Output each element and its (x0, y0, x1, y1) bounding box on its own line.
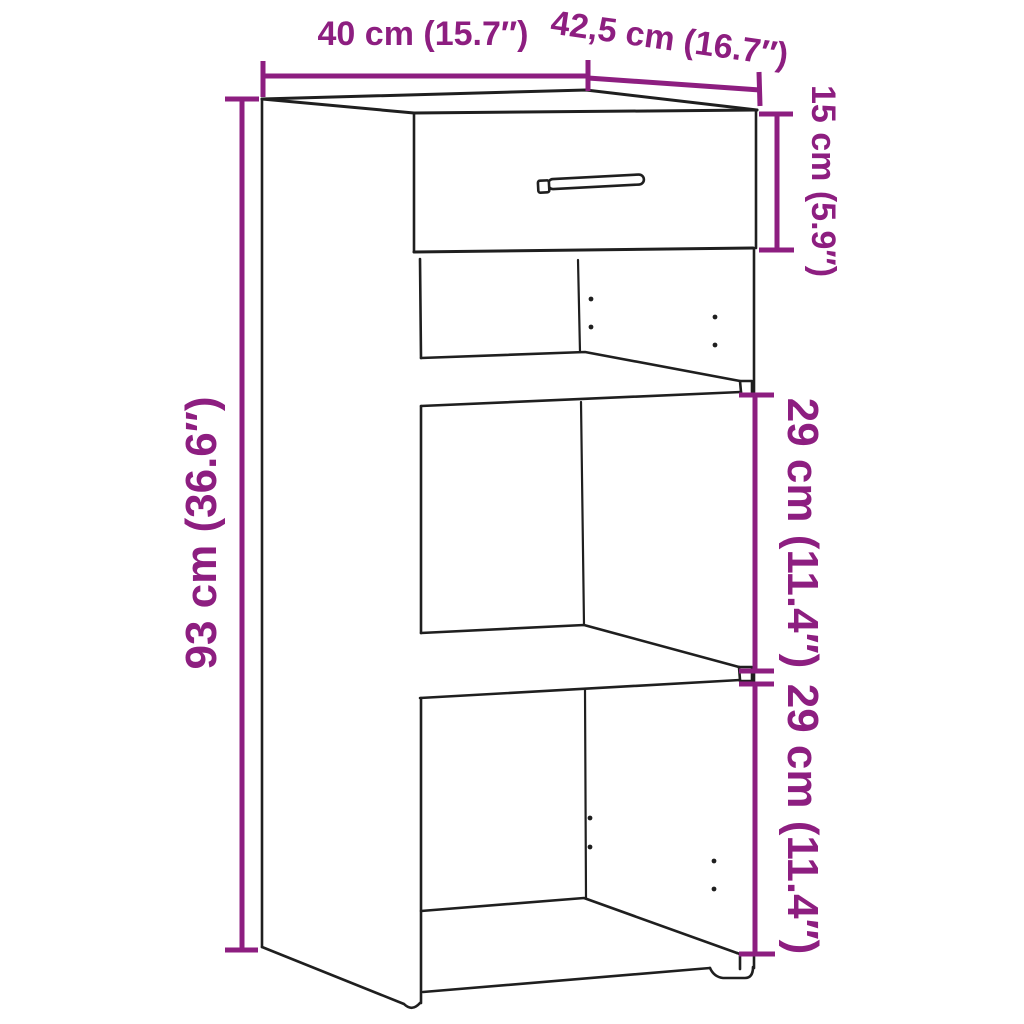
dimension-diagram-svg: 40 cm (15.7″) 42,5 cm (16.7″) 15 cm (5.9… (0, 0, 1024, 1024)
product-dimension-image: 40 cm (15.7″) 42,5 cm (16.7″) 15 cm (5.9… (0, 0, 1024, 1024)
dimension-drawer-height: 15 cm (5.9″) (759, 85, 842, 277)
dimension-drawer-height-label: 15 cm (5.9″) (804, 85, 842, 277)
cabinet-drawing (262, 90, 757, 1008)
dimension-width-label: 40 cm (15.7″) (318, 15, 529, 53)
dimension-lower-compartment: 29 cm (11.4″) (739, 684, 827, 955)
dimension-upper-compartment-label: 29 cm (11.4″) (778, 398, 827, 669)
cabinet-top (262, 90, 757, 113)
upper-shelf (421, 352, 752, 406)
left-side-panel (262, 99, 421, 1008)
shelf-pin-holes (588, 297, 718, 892)
dimension-upper-compartment: 29 cm (11.4″) (739, 395, 827, 671)
lower-shelf (420, 625, 752, 698)
drawer-handle (538, 174, 645, 193)
interior-back-edge (578, 260, 586, 898)
dimension-lower-compartment-label: 29 cm (11.4″) (778, 684, 827, 955)
bottom-board (421, 898, 753, 992)
dimension-width: 40 cm (15.7″) (263, 15, 588, 97)
dimension-total-height: 93 cm (36.6″) (177, 99, 259, 950)
dimension-depth-label: 42,5 cm (16.7″) (548, 4, 790, 75)
dimension-annotations: 40 cm (15.7″) 42,5 cm (16.7″) 15 cm (5.9… (177, 4, 842, 955)
dimension-total-height-label: 93 cm (36.6″) (177, 396, 226, 669)
